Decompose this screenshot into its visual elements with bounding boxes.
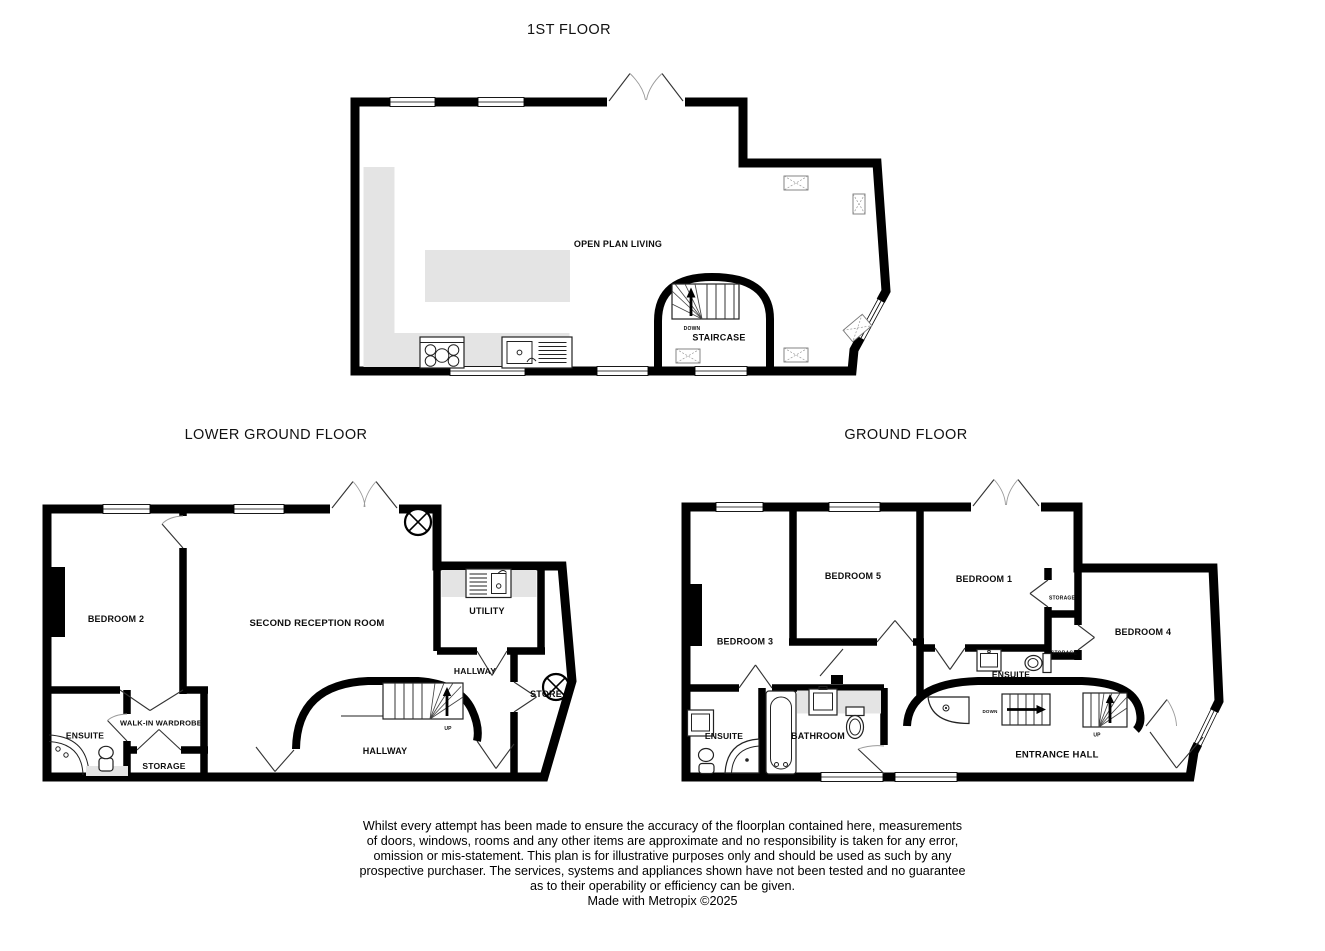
room-label-bedroom4: BEDROOM 4 bbox=[1115, 627, 1171, 637]
stairs-down bbox=[1002, 694, 1050, 725]
room-label-bedroom5: BEDROOM 5 bbox=[825, 571, 881, 581]
disclaimer-line: Whilst every attempt has been made to en… bbox=[0, 819, 1325, 834]
disclaimer: Whilst every attempt has been made to en… bbox=[0, 819, 1325, 908]
toilet bbox=[99, 746, 113, 771]
stairs-label-down: DOWN bbox=[982, 709, 997, 714]
floorplan-drawing: OPEN PLAN LIVING DOWN STAIRCASE bbox=[0, 0, 1325, 951]
room-label-second-reception: SECOND RECEPTION ROOM bbox=[249, 618, 384, 629]
first-floor-outer-wall bbox=[355, 102, 886, 371]
double-door bbox=[607, 74, 685, 107]
disclaimer-line: as to their operability or efficiency ca… bbox=[0, 879, 1325, 894]
room-label-ensuite-inner: ENSUITE bbox=[992, 670, 1030, 680]
room-label-ensuite-left: ENSUITE bbox=[705, 731, 743, 741]
room-label-entrance-hall: ENTRANCE HALL bbox=[1015, 750, 1098, 761]
toilet bbox=[846, 707, 864, 739]
room-label-open-plan-living: OPEN PLAN LIVING bbox=[574, 239, 662, 249]
stairs-label-up: UP bbox=[1093, 733, 1101, 739]
room-label-utility: UTILITY bbox=[469, 606, 504, 616]
stairs-label-down: DOWN bbox=[684, 326, 701, 332]
sink bbox=[977, 650, 1001, 672]
utility-sink bbox=[442, 569, 537, 598]
kitchen-sink bbox=[502, 337, 572, 368]
disclaimer-line: prospective purchaser. The services, sys… bbox=[0, 864, 1325, 879]
disclaimer-line: omission or mis-statement. This plan is … bbox=[0, 849, 1325, 864]
stairs-down bbox=[672, 284, 739, 319]
ground-floor-plan: BEDROOM 3 BEDROOM 5 BEDROOM 1 BEDROOM 4 … bbox=[686, 480, 1219, 782]
lower-ground-floor-plan: BEDROOM 2 SECOND RECEPTION ROOM UTILITY … bbox=[47, 482, 572, 778]
room-label-hallway-lower: HALLWAY bbox=[363, 746, 408, 756]
room-label-bedroom3: BEDROOM 3 bbox=[717, 637, 773, 647]
room-label-ensuite: ENSUITE bbox=[66, 731, 104, 741]
room-label-bedroom2: BEDROOM 2 bbox=[88, 614, 144, 624]
double-door bbox=[971, 480, 1041, 513]
stairs-label-up: UP bbox=[444, 726, 452, 732]
room-label-storage-mid: STORAGE bbox=[1051, 651, 1077, 657]
double-door bbox=[330, 482, 399, 515]
room-label-staircase: STAIRCASE bbox=[692, 333, 745, 343]
circled-x-symbol bbox=[405, 509, 431, 535]
room-label-storage-top: STORAGE bbox=[1049, 596, 1075, 602]
hob bbox=[420, 337, 464, 368]
room-label-walk-in-wardrobe: WALK-IN WARDROBE bbox=[120, 719, 202, 728]
first-floor-plan: OPEN PLAN LIVING DOWN STAIRCASE bbox=[355, 74, 886, 376]
disclaimer-line: of doors, windows, rooms and any other i… bbox=[0, 834, 1325, 849]
floorplan-page: 1ST FLOOR LOWER GROUND FLOOR GROUND FLOO… bbox=[0, 0, 1325, 951]
chimney-breast bbox=[47, 567, 65, 637]
room-label-bathroom: BATHROOM bbox=[791, 731, 845, 741]
room-label-storage: STORAGE bbox=[142, 761, 185, 771]
room-label-hallway-upper: HALLWAY bbox=[454, 666, 496, 676]
credit-line: Made with Metropix ©2025 bbox=[0, 894, 1325, 909]
sink bbox=[809, 687, 837, 716]
room-label-bedroom1: BEDROOM 1 bbox=[956, 574, 1012, 584]
lower-ground-outer-wall bbox=[47, 509, 572, 777]
chimney-breast bbox=[686, 584, 702, 646]
stairs-up bbox=[1083, 693, 1127, 727]
